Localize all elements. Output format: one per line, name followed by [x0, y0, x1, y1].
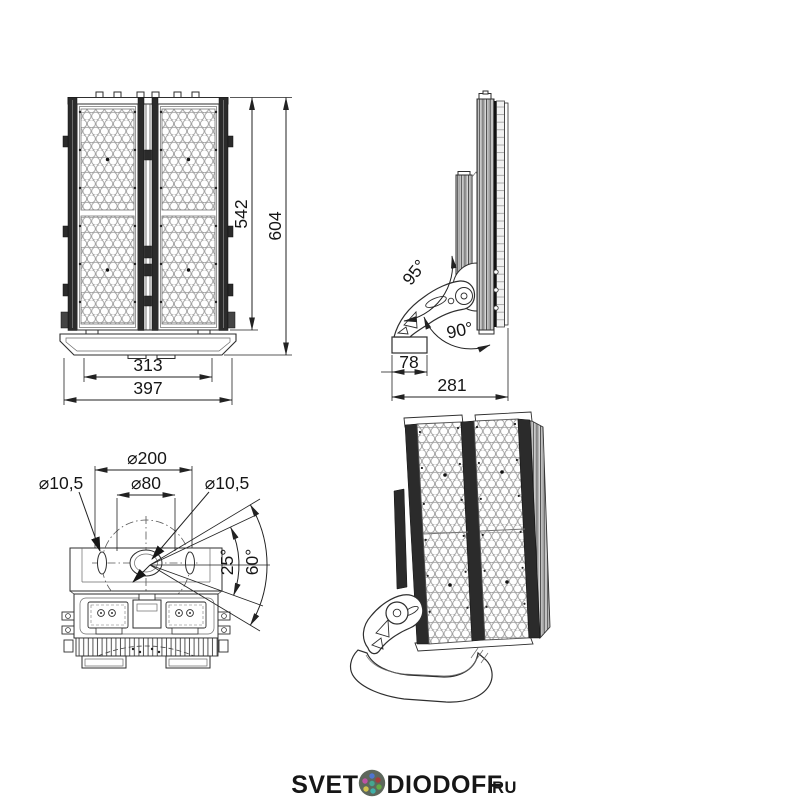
side-main-body: [477, 91, 508, 334]
angle-label-95: 95°: [398, 256, 430, 289]
dim-label-center-hole: ⌀80: [131, 473, 161, 493]
mount-hole-right: [186, 552, 195, 574]
isometric-view: [351, 412, 550, 702]
top-dimensions: ⌀200 ⌀80 ⌀10,5 ⌀10,5: [39, 448, 250, 559]
dim-label-total-width: 397: [133, 378, 162, 398]
front-view: 542 604 313 397: [60, 92, 292, 405]
dim-label-total-depth: 281: [437, 375, 466, 395]
iso-panels: [405, 419, 540, 644]
driver-box-right: [166, 602, 206, 628]
logo-text-diodoff: DIODOFF: [387, 771, 503, 799]
dim-label-right-hole: ⌀10,5: [205, 473, 250, 493]
side-view: 95° 90° 78 281: [381, 91, 508, 401]
led-lamp-icon: [359, 770, 385, 796]
side-bracket: [392, 281, 475, 353]
mount-hole-left: [98, 552, 107, 574]
top-body: [62, 594, 230, 668]
logo-text-svet: SVET: [291, 771, 358, 799]
front-top-cap: [68, 98, 228, 105]
side-clamp-left: [62, 612, 74, 652]
front-led-module-right: [158, 104, 219, 330]
dim-label-bolt-circle: ⌀200: [127, 448, 167, 468]
iso-rear-heatsink: [394, 489, 407, 589]
bracket-base: [392, 337, 427, 353]
dim-label-base-depth: 78: [399, 352, 418, 372]
foot-left: [82, 656, 126, 668]
dim-label-left-hole: ⌀10,5: [39, 473, 84, 493]
foot-right: [166, 656, 210, 668]
angle-label-90: 90°: [445, 318, 475, 343]
driver-box-left: [88, 602, 128, 628]
logo: SVET DIODOFF .RU: [291, 770, 517, 799]
angle-label-25: 25°: [217, 549, 237, 575]
dim-label-total-height: 604: [265, 211, 285, 240]
angle-label-60: 60°: [242, 549, 262, 575]
dim-label-inner-width: 313: [133, 355, 162, 375]
technical-drawing: 542 604 313 397: [0, 0, 800, 800]
leader-left-hole: [79, 492, 100, 551]
front-center-strip: [145, 104, 152, 330]
logo-text-tld: .RU: [487, 779, 517, 797]
heatsink-fins: [76, 638, 218, 656]
front-led-module-left: [77, 104, 138, 330]
side-lens-edge: [497, 101, 505, 327]
dim-label-panel-height: 542: [231, 199, 251, 228]
side-clamp-right: [218, 612, 230, 652]
top-view: 25° 60° ⌀200 ⌀80 ⌀10,5 ⌀10,5: [39, 448, 270, 668]
